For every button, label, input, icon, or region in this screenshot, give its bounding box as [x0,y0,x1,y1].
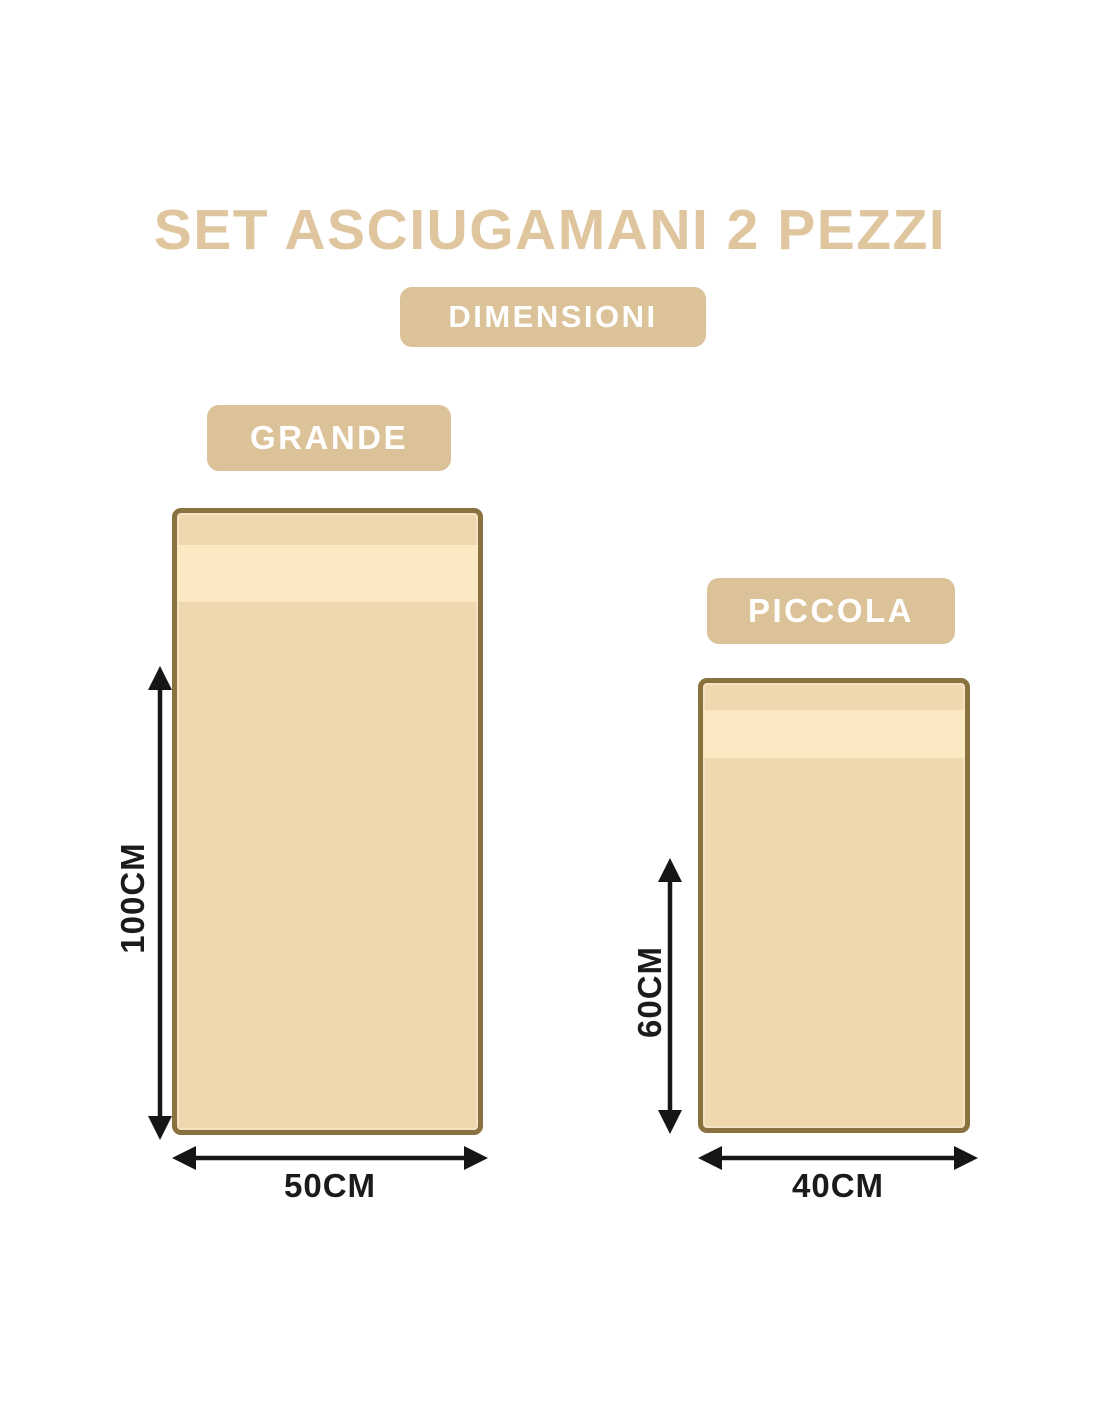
page-title: SET ASCIUGAMANI 2 PEZZI [0,197,1100,263]
dimensions-badge: DIMENSIONI [400,287,706,347]
towel-large-name-badge: GRANDE [207,405,451,471]
towel-small-stripe [703,710,965,758]
towel-large-height-label: 100CM [113,798,153,998]
towel-small-name-badge: PICCOLA [707,578,955,644]
towel-large-width-label: 50CM [180,1167,480,1205]
towel-large-stripe [177,545,478,602]
towel-large-illustration [172,508,483,1135]
towel-set-infographic: SET ASCIUGAMANI 2 PEZZI DIMENSIONI GRAND… [0,0,1100,1422]
towel-small-illustration [698,678,970,1133]
towel-small-height-label: 60CM [630,892,670,1092]
towel-small-width-label: 40CM [688,1167,988,1205]
